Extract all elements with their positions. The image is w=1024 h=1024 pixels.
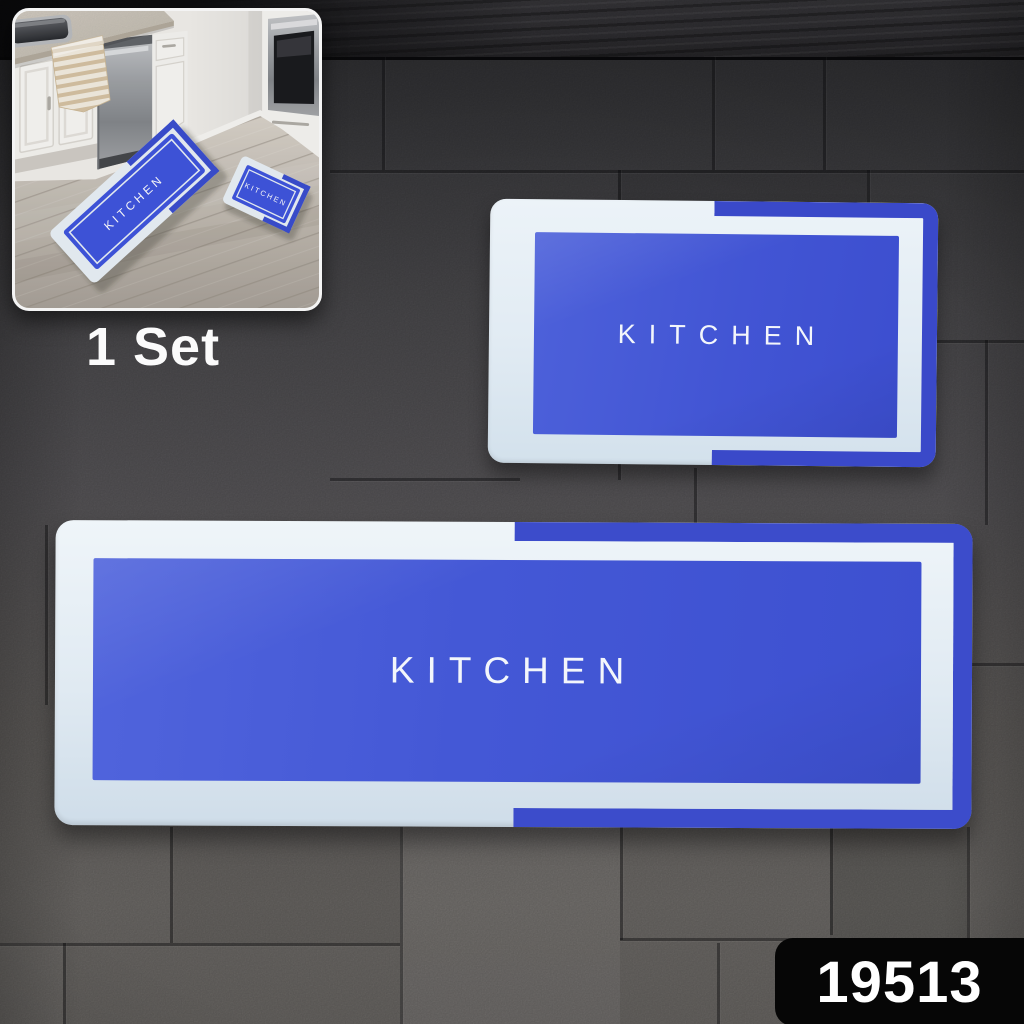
small-mat-label: KITCHEN xyxy=(618,319,828,352)
set-count-label: 1 Set xyxy=(86,316,220,378)
runner-mat-label: KITCHEN xyxy=(390,649,637,692)
product-photo-stage: KITCHEN KITCHEN 1 Set KITCHEN KITCHEN xyxy=(0,0,1024,1024)
small-kitchen-mat: KITCHEN xyxy=(488,199,939,468)
product-code-badge: 19513 xyxy=(775,938,1024,1024)
runner-mat-center: KITCHEN xyxy=(93,558,922,784)
runner-kitchen-mat: KITCHEN xyxy=(54,520,972,829)
kitchen-scene: KITCHEN KITCHEN xyxy=(15,11,319,308)
product-code: 19513 xyxy=(775,949,1024,1016)
small-mat-center: KITCHEN xyxy=(533,232,899,438)
inset-photo: KITCHEN KITCHEN xyxy=(12,8,322,311)
